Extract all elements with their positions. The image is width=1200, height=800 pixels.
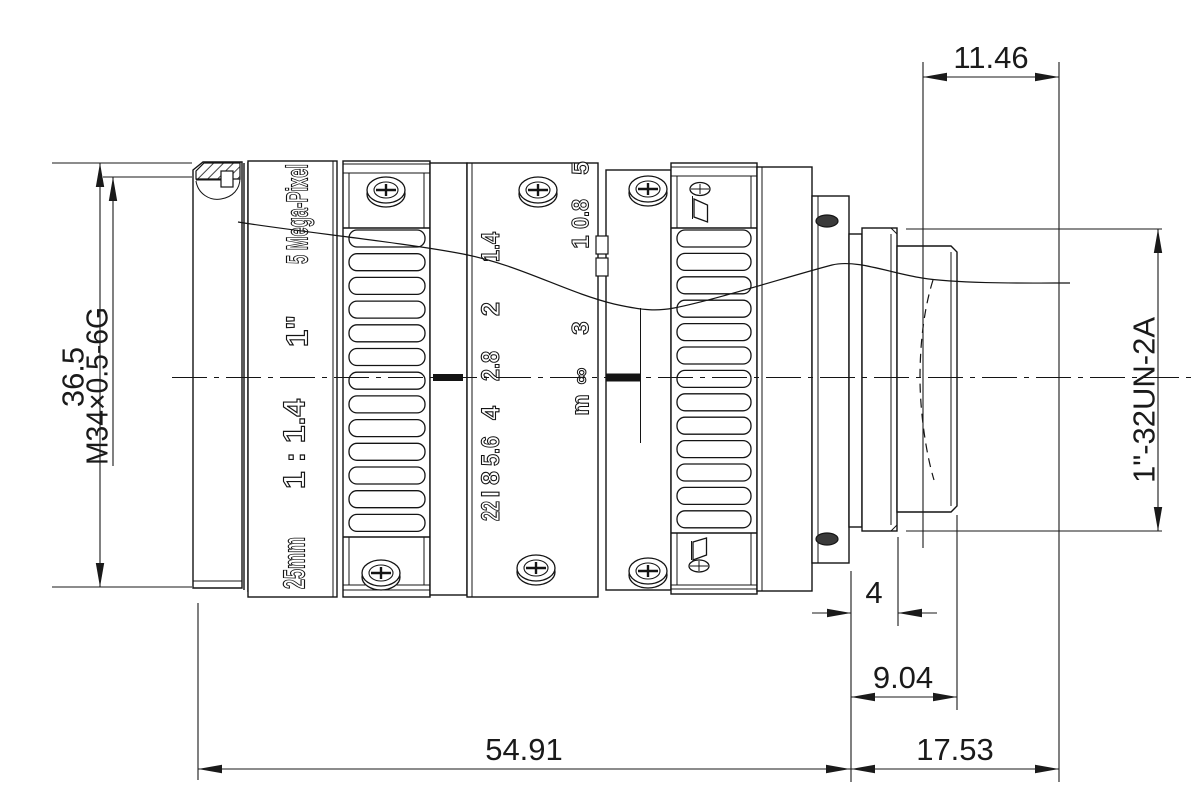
dimension-arrowhead [96,163,104,187]
label-format: 1" [280,315,315,347]
scale-label: ∞ [568,367,595,384]
scale-label: 5 [568,161,595,174]
phillips-screw-icon [519,177,557,207]
scale-label: 1 [568,235,595,248]
phillips-screw-icon [367,177,405,207]
thread-notch [221,171,233,187]
dimension-arrowhead [1035,765,1059,773]
flange-screw-icon [816,215,838,227]
knurl-rib [349,349,425,366]
knurl-rib [349,254,425,271]
knurl-rib [349,514,425,531]
knurl-rib [349,277,425,294]
lens-technical-drawing: 5 Mega-Pixel 1" 1 : 1.4 25mm [0,0,1200,800]
mount-flange [812,196,849,563]
spacer-band [430,163,467,595]
scale-label: 1.4 [477,232,505,262]
dimension-arrowhead [109,177,117,201]
dimension-arrowhead [1154,229,1162,253]
dim-rear-protrusion: 11.46 [953,40,1028,75]
scale-label: 5.6 [477,436,505,466]
phillips-screw-icon [629,176,667,206]
thumbscrew-icon [689,538,709,572]
knurl-rib [349,443,425,460]
dimension-arrowhead [826,765,850,773]
scale-label: 2.8 [477,351,505,381]
phillips-screw-icon [362,560,400,590]
knurl-rib [677,511,751,528]
dim-mount-thread: 1"-32UN-2A [1127,317,1162,483]
dimension-arrowhead [1035,73,1059,81]
dimension-arrowhead [933,693,957,701]
knurl-rib [349,467,425,484]
label-aperture-ratio: 1 : 1.4 [277,398,312,489]
phillips-screw-icon [629,558,667,588]
scale-label: I [477,491,505,498]
knurl-rib [677,347,751,364]
knurl-rib [349,491,425,508]
scale-label: 8 [477,471,505,485]
dimension-arrowhead [851,765,875,773]
knurl-rib [349,420,425,437]
scale-label: 3 [568,321,595,334]
front-ring [193,162,242,588]
detent-tab [596,236,608,254]
knurl-rib [677,487,751,504]
rear-barrel [897,246,957,512]
index-band [596,170,671,590]
scale-label: 22 [477,501,505,521]
knurl-rib [349,372,425,389]
scale-band: 22I85.642.821.4 m∞310.85 [467,161,598,597]
rear-body-band [757,167,812,591]
knurl-rib [677,417,751,434]
label-focal-length: 25mm [277,537,312,589]
dim-rear-section: 9.04 [873,660,933,695]
dim-flange-width: 4 [865,575,882,610]
rear-knurled-ring [671,163,757,594]
knurl-rib [677,464,751,481]
phillips-screw-icon [517,555,555,585]
dim-body-length: 54.91 [485,732,563,767]
name-ring: 5 Mega-Pixel 1" 1 : 1.4 25mm [248,161,337,597]
knurl-rib [677,324,751,341]
dimension-arrowhead [851,693,875,701]
knurl-rib [677,253,751,270]
knurl-rib [677,370,751,387]
scale-label: m [568,394,595,415]
detent-tab [596,258,608,276]
scale-label: 0.8 [568,199,595,229]
dimension-arrowhead [198,765,222,773]
dimension-arrowhead [923,73,947,81]
knurl-rib [677,300,751,317]
dimension-arrowhead [1154,507,1162,531]
knurl-rib [349,325,425,342]
lens-body: 5 Mega-Pixel 1" 1 : 1.4 25mm [172,161,1192,597]
knurl-rib [349,396,425,413]
scale-label: 4 [477,406,505,420]
knurl-rib [677,441,751,458]
front-knurled-ring [343,161,430,597]
dimension-arrowhead [96,563,104,587]
dimension-arrowhead [827,609,851,617]
knurl-rib [677,394,751,411]
thread-ring [862,228,897,531]
knurl-rib [349,301,425,318]
mount-step [849,234,862,527]
knurl-rib [677,230,751,247]
scale-label: 2 [477,302,505,316]
flange-screw-icon [816,533,838,545]
dim-mount-length: 17.53 [916,732,994,767]
dimension-arrowhead [898,609,922,617]
dim-front-thread: M34×0.5-6G [80,307,115,465]
label-resolution: 5 Mega-Pixel [280,164,315,264]
